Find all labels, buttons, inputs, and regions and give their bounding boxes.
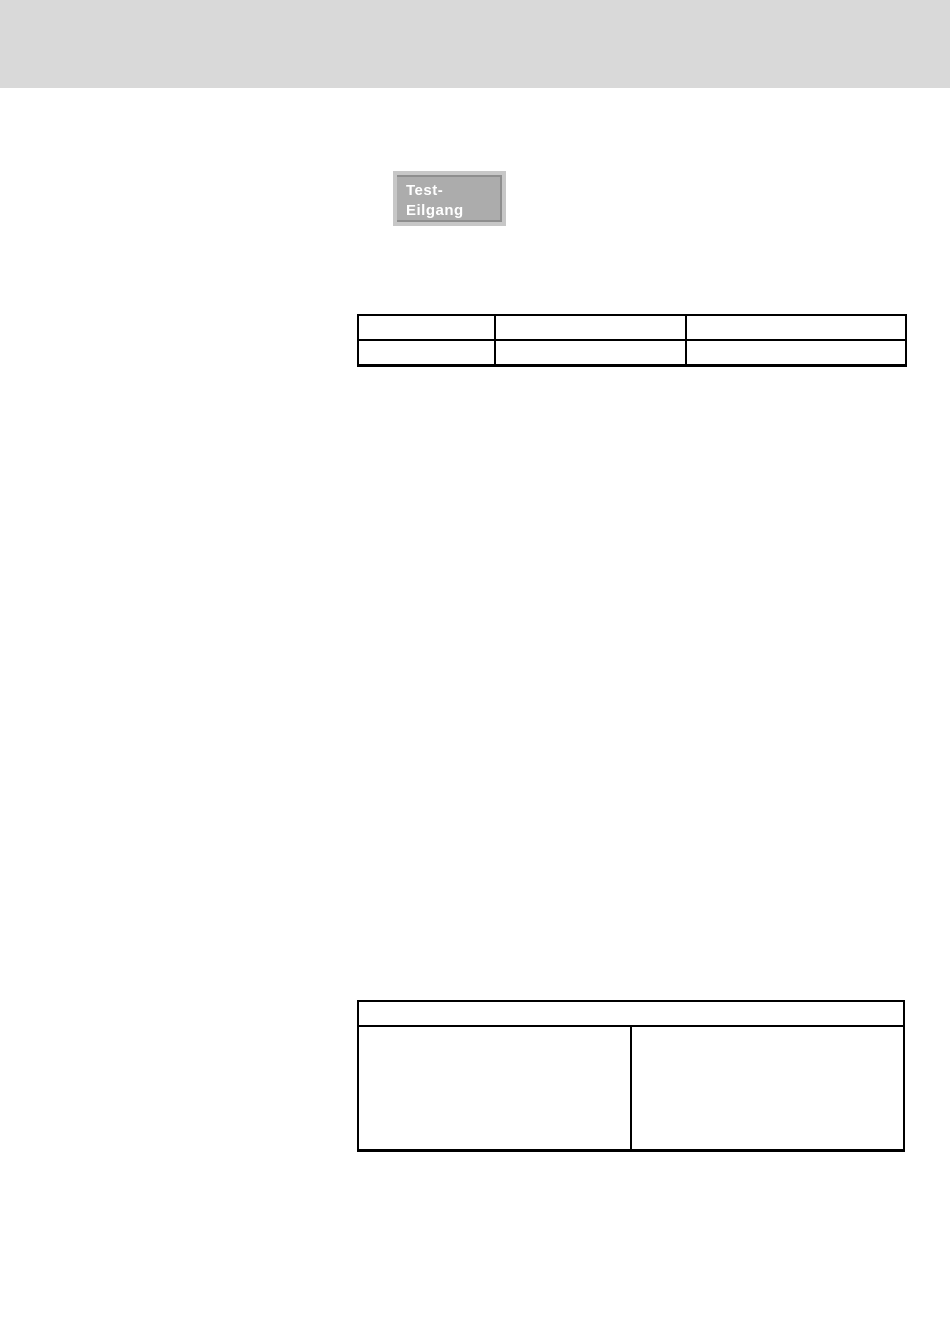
- table-header-cell: [358, 1001, 904, 1026]
- table-cell: [686, 315, 906, 340]
- table-cell: [358, 1026, 631, 1150]
- button-label-line1: Test-: [406, 181, 500, 201]
- table-cell: [495, 315, 686, 340]
- button-label-line2: Eilgang: [406, 201, 500, 221]
- info-table: [357, 1000, 905, 1152]
- test-eilgang-button[interactable]: Test- Eilgang: [393, 171, 506, 226]
- table-row: [358, 1026, 904, 1150]
- table-cell: [358, 340, 495, 365]
- table-cell: [631, 1026, 904, 1150]
- table-header-row: [358, 1001, 904, 1026]
- table-row: [358, 340, 906, 365]
- table-cell: [686, 340, 906, 365]
- table-row: [358, 315, 906, 340]
- parameter-table: [357, 314, 907, 367]
- document-page: { "page": { "background_color": "#ffffff…: [0, 0, 950, 1344]
- test-eilgang-button-face: Test- Eilgang: [397, 175, 502, 222]
- table-cell: [358, 315, 495, 340]
- top-gray-bar: [0, 0, 950, 88]
- table-cell: [495, 340, 686, 365]
